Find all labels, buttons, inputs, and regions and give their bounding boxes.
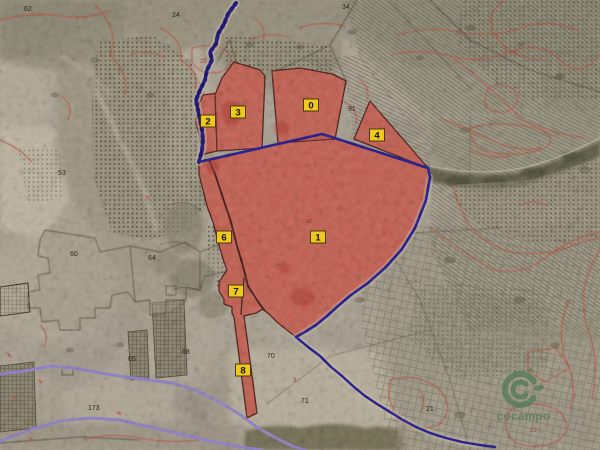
- svg-text:71: 71: [301, 398, 309, 405]
- svg-text:1: 1: [315, 233, 321, 244]
- svg-text:21: 21: [426, 406, 434, 413]
- svg-text:64: 64: [148, 255, 156, 262]
- svg-text:68: 68: [182, 349, 190, 356]
- svg-text:0: 0: [308, 101, 313, 112]
- svg-text:173: 173: [88, 405, 100, 412]
- svg-text:2: 2: [205, 117, 210, 128]
- svg-text:25: 25: [200, 59, 207, 65]
- svg-text:22: 22: [530, 428, 537, 434]
- svg-text:34: 34: [342, 4, 350, 11]
- svg-text:24: 24: [172, 12, 180, 19]
- svg-text:cocampo: cocampo: [497, 411, 550, 423]
- svg-text:65: 65: [128, 356, 136, 363]
- svg-text:7: 7: [233, 287, 238, 298]
- svg-text:91: 91: [348, 106, 356, 113]
- svg-text:6: 6: [221, 233, 226, 244]
- svg-text:62: 62: [24, 6, 32, 13]
- svg-text:8: 8: [240, 366, 245, 377]
- svg-text:4: 4: [374, 131, 380, 142]
- svg-text:42: 42: [306, 219, 312, 225]
- svg-text:3: 3: [235, 108, 240, 119]
- svg-text:60: 60: [70, 251, 78, 258]
- svg-text:70: 70: [267, 353, 275, 360]
- svg-text:53: 53: [58, 170, 66, 177]
